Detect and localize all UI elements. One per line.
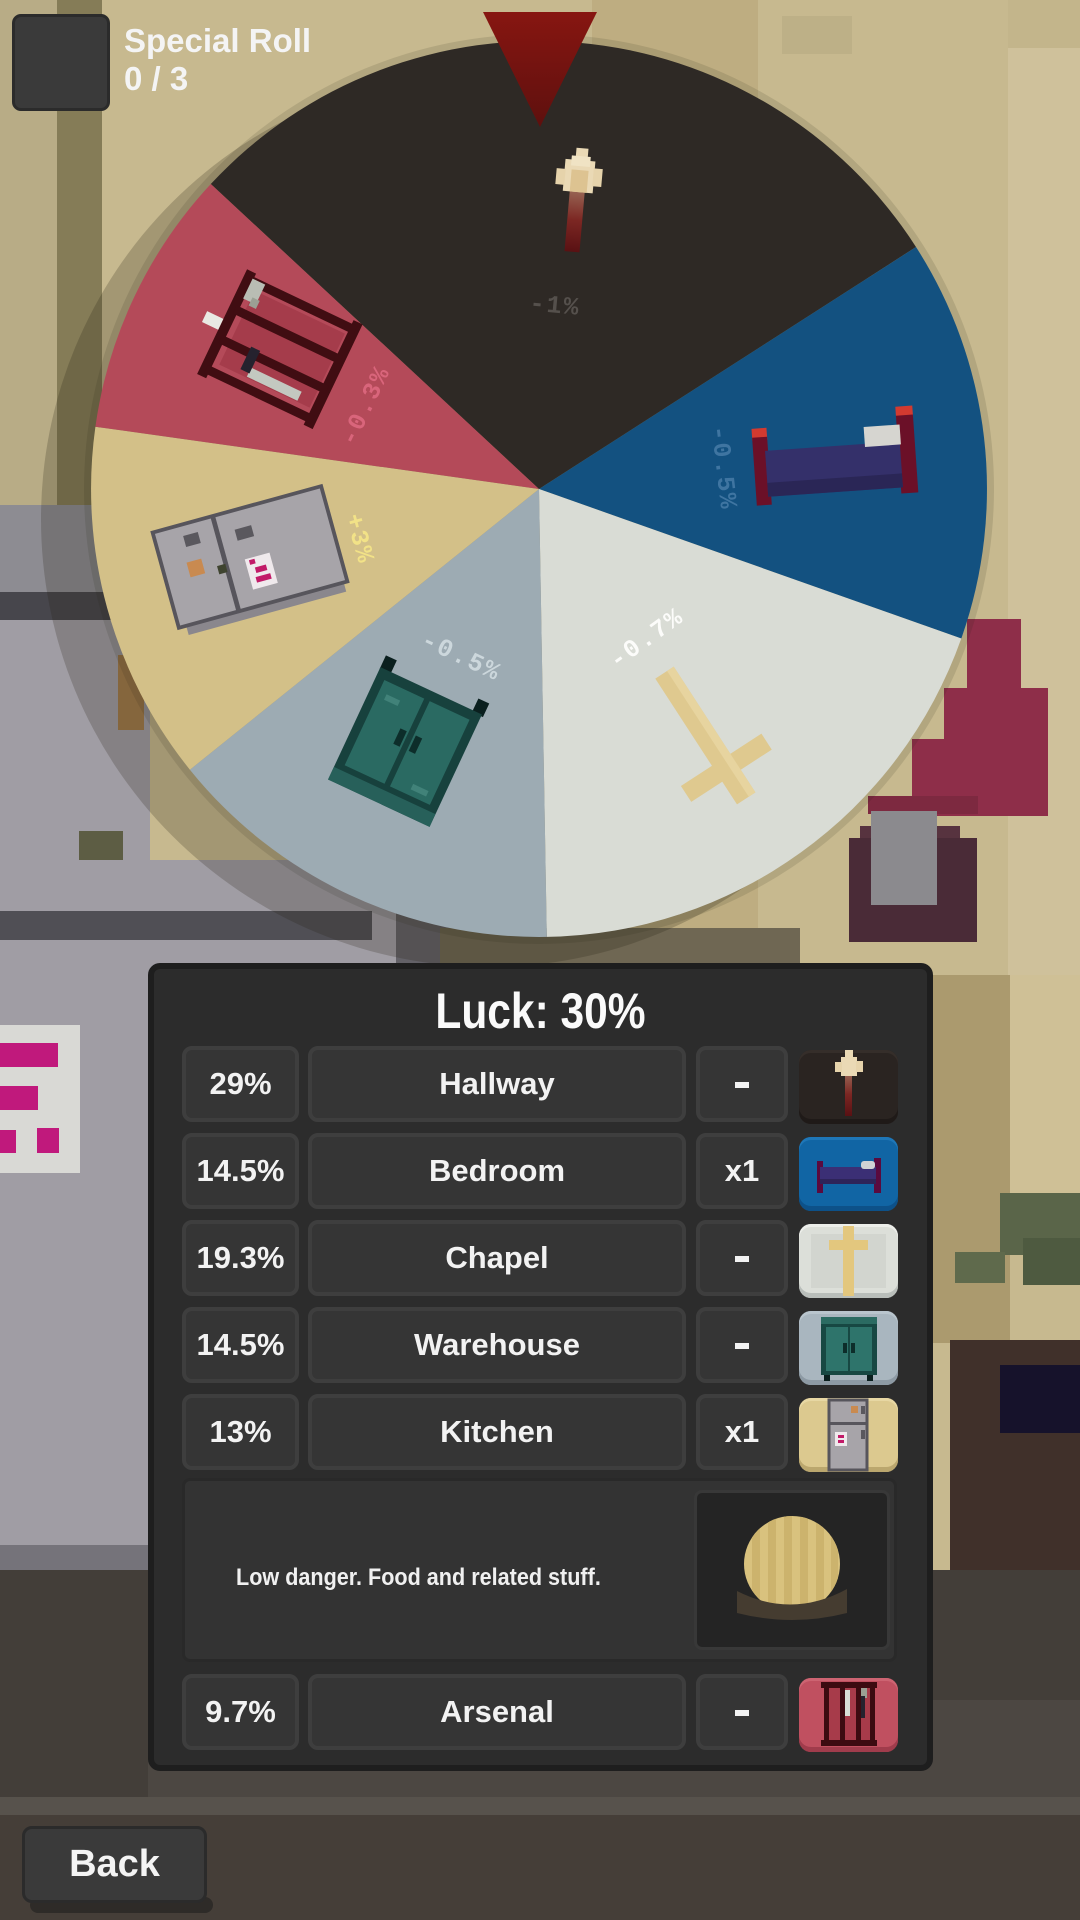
svg-text:-1%: -1% [528, 289, 581, 322]
